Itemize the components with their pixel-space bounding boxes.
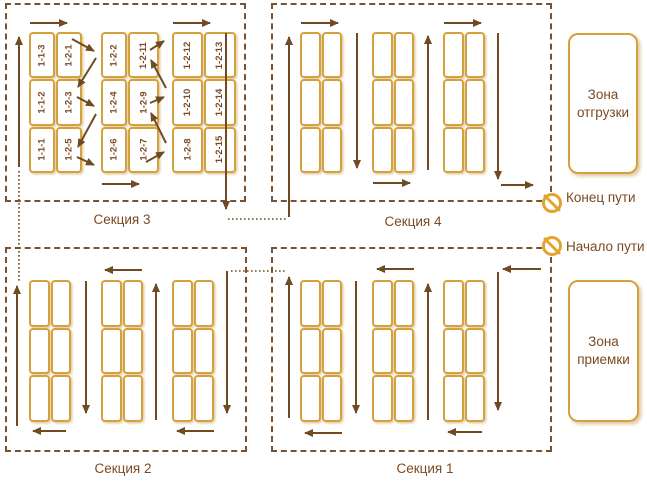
cell-label: 1-2-7 [138, 139, 149, 161]
rack-cell: 1-2-10 [172, 79, 203, 125]
receiving-zone-label: Зона приемки [575, 333, 632, 368]
cell-label: 1-1-1 [37, 139, 48, 161]
rack-cell [394, 32, 415, 78]
rack-cell: 1-2-4 [101, 79, 127, 125]
rack-cell [29, 328, 50, 375]
rack-cell [394, 280, 415, 327]
section-2-label: Секция 2 [63, 461, 183, 477]
cell-label: 1-1-2 [37, 91, 48, 113]
rack-cell [465, 127, 486, 173]
rack-cell [300, 375, 321, 422]
cell-label: 1-1-3 [37, 44, 48, 66]
section-4-label: Секция 4 [353, 214, 473, 230]
rack-cell [443, 127, 464, 173]
rack-cell [194, 328, 215, 375]
cell-label: 1-2-10 [182, 89, 193, 116]
rack-cell [465, 32, 486, 78]
rack-cell [322, 328, 343, 375]
rack [172, 280, 214, 422]
rack-cell [101, 328, 122, 375]
section-3-label: Секция 3 [62, 212, 182, 228]
rack-cell [123, 280, 144, 327]
rack [443, 280, 485, 422]
rack-cell [465, 79, 486, 125]
rack-cell: 1-2-15 [204, 127, 235, 173]
rack-cell: 1-2-1 [56, 32, 82, 78]
rack-cell [372, 328, 393, 375]
rack-cell [322, 32, 343, 78]
rack [443, 32, 485, 173]
cell-label: 1-2-13 [215, 41, 226, 68]
rack-cell [300, 280, 321, 327]
rack [372, 32, 414, 173]
cell-label: 1-2-5 [64, 139, 75, 161]
rack-cell [372, 32, 393, 78]
route-start-label: Начало пути [566, 239, 645, 255]
rack-cell [322, 79, 343, 125]
rack-cell [465, 328, 486, 375]
shipping-zone: Зона отгрузки [568, 33, 638, 174]
rack-cell [51, 328, 72, 375]
rack [29, 280, 71, 422]
rack-cell [322, 280, 343, 327]
rack-cell [372, 280, 393, 327]
rack-cell [101, 375, 122, 422]
rack [372, 280, 414, 422]
rack-cell [465, 375, 486, 422]
rack-cell [300, 328, 321, 375]
rack-cell [372, 79, 393, 125]
rack-cell: 1-2-2 [101, 32, 127, 78]
shipping-zone-label: Зона отгрузки [575, 86, 631, 121]
rack-cell: 1-2-3 [56, 79, 82, 125]
rack-cell: 1-1-3 [29, 32, 55, 78]
rack-cell: 1-1-1 [29, 127, 55, 173]
rack-cell [123, 375, 144, 422]
rack [300, 280, 342, 422]
rack-cell [51, 280, 72, 327]
cell-label: 1-2-14 [215, 89, 226, 116]
cell-label: 1-2-12 [182, 41, 193, 68]
cell-label: 1-2-4 [109, 91, 120, 113]
rack-cell: 1-2-7 [128, 127, 159, 173]
rack-cell [394, 79, 415, 125]
cell-label: 1-2-9 [138, 91, 149, 113]
rack-cell [300, 32, 321, 78]
cell-label: 1-2-15 [215, 136, 226, 163]
rack-cell [443, 280, 464, 327]
rack-cell: 1-1-2 [29, 79, 55, 125]
rack-cell [172, 280, 193, 327]
rack-cell [394, 127, 415, 173]
rack-cell [394, 375, 415, 422]
rack-cell: 1-2-12 [172, 32, 203, 78]
rack: 1-1-3 1-2-1 1-1-2 1-2-3 1-1-1 1-2-5 [29, 32, 71, 173]
cell-label: 1-2-8 [182, 139, 193, 161]
rack-cell [443, 32, 464, 78]
rack-cell [443, 328, 464, 375]
rack-cell: 1-2-5 [56, 127, 82, 173]
rack-cell [443, 375, 464, 422]
rack-cell: 1-2-9 [128, 79, 159, 125]
rack-cell [194, 375, 215, 422]
rack-cell [172, 375, 193, 422]
rack-cell [123, 328, 144, 375]
rack-cell: 1-2-8 [172, 127, 203, 173]
rack [101, 280, 143, 422]
rack-cell [465, 280, 486, 327]
rack-cell [29, 375, 50, 422]
cell-label: 1-2-2 [109, 44, 120, 66]
rack-cell: 1-2-14 [204, 79, 235, 125]
rack: 1-2-2 1-2-11 1-2-4 1-2-9 1-2-6 1-2-7 [101, 32, 143, 173]
rack-cell: 1-2-11 [128, 32, 159, 78]
rack-cell [172, 328, 193, 375]
rack-cell: 1-2-6 [101, 127, 127, 173]
rack-cell [394, 328, 415, 375]
section-1-label: Секция 1 [365, 461, 485, 477]
rack-cell: 1-2-13 [204, 32, 235, 78]
cell-label: 1-2-11 [138, 42, 149, 69]
rack: 1-2-12 1-2-13 1-2-10 1-2-14 1-2-8 1-2-15 [172, 32, 215, 173]
rack-cell [29, 280, 50, 327]
rack-cell [322, 375, 343, 422]
rack-cell [300, 127, 321, 173]
rack-cell [300, 79, 321, 125]
receiving-zone: Зона приемки [568, 280, 639, 422]
cell-label: 1-2-1 [64, 44, 75, 66]
rack-cell [51, 375, 72, 422]
rack-cell [101, 280, 122, 327]
cell-label: 1-2-6 [109, 139, 120, 161]
warehouse-route-diagram: 1-1-3 1-2-1 1-1-2 1-2-3 1-1-1 1-2-5 1-2-… [0, 0, 647, 483]
rack-cell [194, 280, 215, 327]
rack-cell [372, 127, 393, 173]
rack-cell [443, 79, 464, 125]
cell-label: 1-2-3 [64, 91, 75, 113]
route-end-label: Конец пути [566, 190, 636, 206]
rack [300, 32, 342, 173]
rack-cell [322, 127, 343, 173]
rack-cell [372, 375, 393, 422]
